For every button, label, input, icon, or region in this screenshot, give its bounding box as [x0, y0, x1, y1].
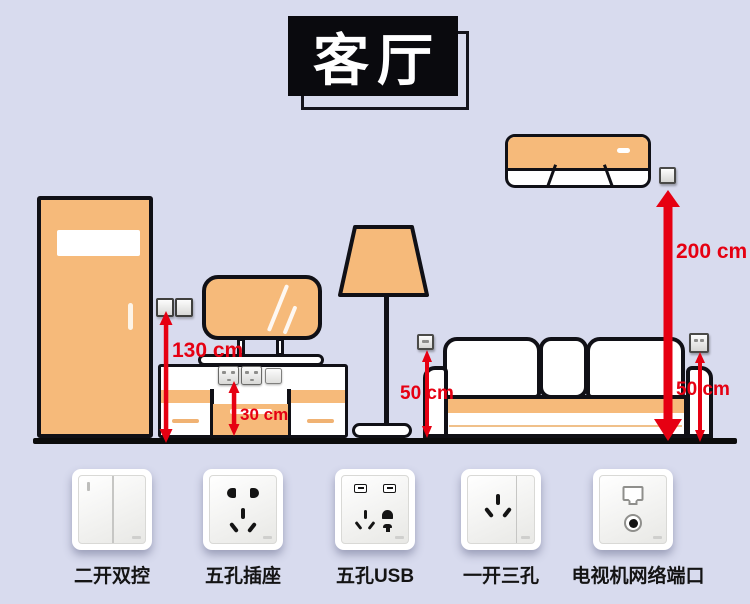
- socket-live-slot: [355, 521, 363, 530]
- wall-switch-right-key: [175, 298, 193, 317]
- sofa-right-wall-socket: [689, 333, 709, 353]
- socket-earth-slot: [241, 508, 245, 519]
- sofa-left-wall-socket: [417, 334, 434, 350]
- door-handle: [128, 303, 133, 330]
- sofa-armrest-right: [686, 366, 713, 438]
- switch-divider: [516, 476, 518, 543]
- socket-live-slot: [484, 507, 494, 518]
- cabinet-socket-1: [218, 366, 239, 385]
- socket-flat-pin-right: [250, 488, 259, 498]
- socket-earth-slot: [496, 494, 500, 505]
- usb-port-left: [354, 484, 367, 493]
- usb-port-right: [383, 484, 396, 493]
- page-title-text: 客厅: [305, 16, 441, 97]
- label-50cm-left: 50 cm: [400, 383, 454, 405]
- sofa-back-cushion-right: [586, 337, 685, 399]
- socket-flat-pin-left: [227, 488, 236, 498]
- air-conditioner: [505, 134, 651, 188]
- product-card-switch-three-hole: [461, 469, 541, 550]
- floor-line: [33, 438, 737, 444]
- sofa-back-cushion-middle: [539, 337, 588, 399]
- socket-earth-slot: [364, 510, 367, 519]
- product-label-5: 电视机网络端口: [548, 561, 728, 588]
- cabinet-left-band: [161, 390, 210, 403]
- living-room-infographic: 客厅: [0, 0, 750, 604]
- socket-neutral-slot: [502, 507, 512, 518]
- ac-wall-socket: [659, 167, 676, 184]
- label-200cm: 200 cm: [676, 240, 747, 264]
- sofa-seat: [443, 395, 688, 438]
- product-card-usb-socket: [335, 469, 415, 550]
- product-card-double-switch: [72, 469, 152, 550]
- double-rocker-switch-icon: [78, 475, 146, 544]
- brand-mark: [132, 536, 141, 539]
- socket-live-slot: [229, 522, 239, 533]
- cabinet-right-band: [291, 390, 345, 403]
- television: [202, 275, 322, 340]
- socket-neutral-slot: [247, 522, 257, 533]
- ac-front-panel: [508, 137, 648, 171]
- socket-neutral-slot: [368, 521, 376, 530]
- switch-divider: [112, 476, 114, 543]
- cabinet-left-drawer-handle: [172, 419, 199, 423]
- brand-mark: [653, 536, 662, 539]
- sofa-skirt-line: [449, 425, 682, 427]
- lamp-pole: [384, 293, 389, 426]
- label-130cm: 130 cm: [172, 339, 243, 363]
- socket-dome-hole: [382, 510, 393, 519]
- lamp-base: [352, 423, 412, 438]
- brand-mark: [395, 536, 404, 539]
- wall-switch-left-key: [156, 298, 174, 317]
- lamp-shade: [340, 227, 427, 295]
- five-hole-socket-icon: [209, 475, 277, 544]
- label-30cm: 30 cm: [240, 405, 288, 425]
- network-jack-tab: [629, 499, 638, 505]
- tv-network-port-icon: [599, 475, 667, 544]
- cabinet-right-drawer-handle: [307, 419, 334, 423]
- cabinet-socket-2: [241, 366, 262, 385]
- product-card-tv-network-port: [593, 469, 673, 550]
- page-title: 客厅: [288, 16, 458, 96]
- five-hole-usb-socket-icon: [341, 475, 409, 544]
- switch-with-three-hole-socket-icon: [467, 475, 535, 544]
- brand-mark: [263, 536, 272, 539]
- sofa-seat-cushion-band: [447, 399, 684, 413]
- product-card-five-hole-socket: [203, 469, 283, 550]
- coax-tv-port: [624, 514, 642, 532]
- brand-mark: [521, 536, 530, 539]
- socket-small-hole-stem: [386, 528, 390, 532]
- cabinet-socket-3: [265, 368, 282, 384]
- label-50cm-right: 50 cm: [676, 379, 730, 401]
- ac-indicator-light: [617, 148, 630, 153]
- sofa-back-cushion-left: [443, 337, 541, 399]
- door-window-panel: [57, 230, 140, 256]
- switch-indicator-mark: [87, 482, 90, 491]
- door: [37, 196, 153, 438]
- tv-reflection-line-2: [283, 305, 298, 334]
